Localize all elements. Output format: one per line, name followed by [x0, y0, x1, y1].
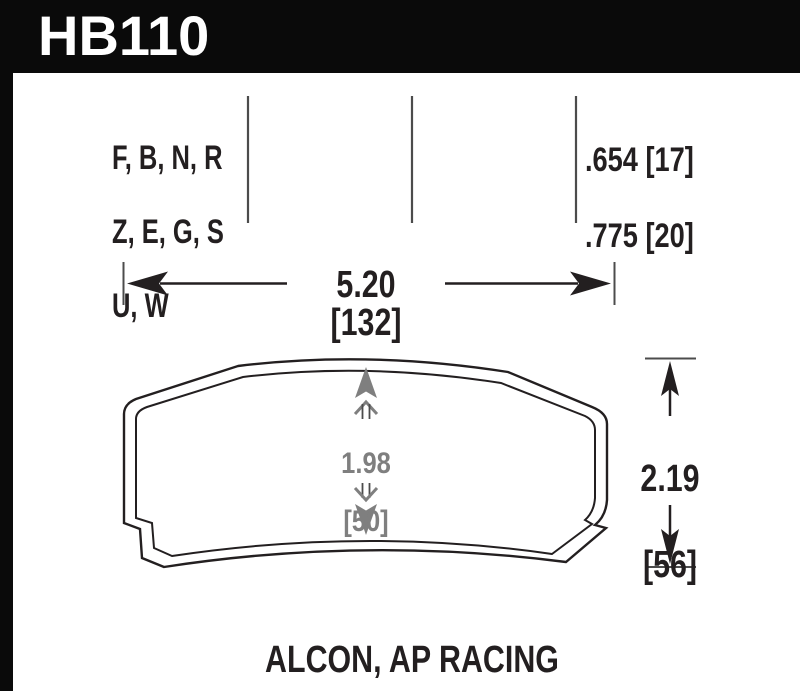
compound-codes: F, B, N, R Z, E, G, S U, W	[112, 103, 224, 362]
width-dimension-label: 5.20 [132]	[306, 266, 426, 342]
pad-thickness-values: .654 [17] .775 [20]	[585, 103, 694, 293]
application-label: ALCON, AP RACING	[252, 641, 572, 679]
brake-pad-spec-diagram: HB110 F, B, N, R Z, E, G,	[0, 0, 800, 691]
pad-height-top-chevron	[355, 402, 377, 414]
pad-thickness-line-2: .775 [20]	[585, 217, 694, 255]
overall-height-value-mm: [56]	[630, 544, 710, 587]
pad-height-value-in: 1.98	[324, 449, 409, 478]
overall-height-value-in: 2.19	[630, 458, 710, 501]
compound-codes-line-3: U, W	[112, 288, 224, 325]
pad-thickness-line-1: .654 [17]	[585, 141, 694, 179]
compound-codes-line-2: Z, E, G, S	[112, 214, 224, 251]
compound-codes-line-1: F, B, N, R	[112, 140, 224, 177]
pad-height-value-mm: [50]	[324, 507, 409, 536]
overall-height-dimension-label: 2.19 [56]	[630, 415, 710, 630]
pad-height-dimension-label: 1.98 [50]	[324, 420, 409, 565]
